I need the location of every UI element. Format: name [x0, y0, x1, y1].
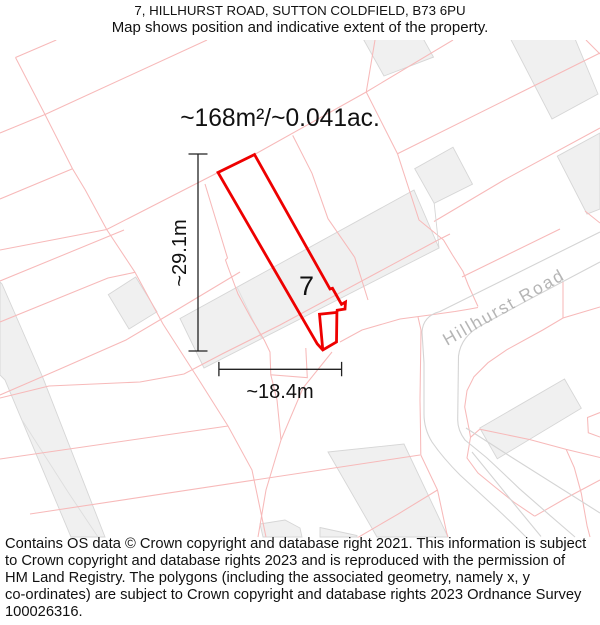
svg-text:7: 7 [299, 271, 314, 301]
svg-text:~168m²/~0.041ac.: ~168m²/~0.041ac. [180, 105, 380, 132]
svg-text:Hillhurst Road: Hillhurst Road [439, 265, 568, 350]
svg-text:~18.4m: ~18.4m [246, 381, 313, 403]
svg-text:~29.1m: ~29.1m [169, 219, 191, 286]
